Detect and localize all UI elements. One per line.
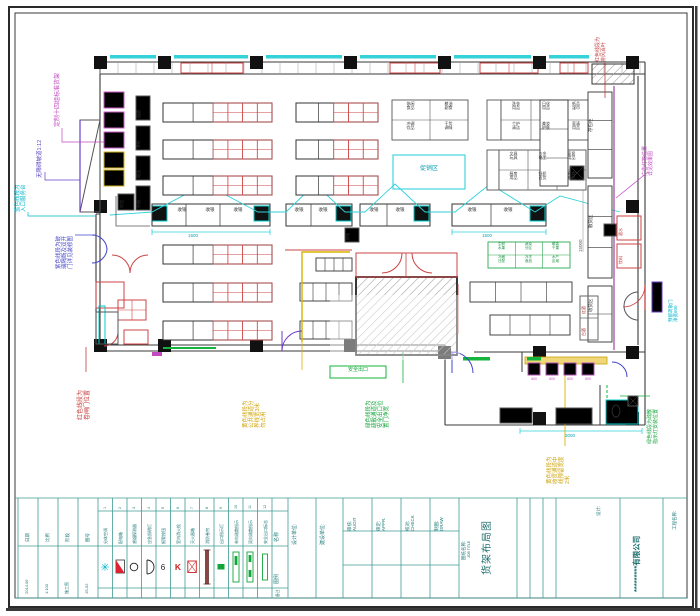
company-name: *********有限公司 <box>633 536 641 592</box>
job-title-label: 图纸名称: <box>461 541 466 560</box>
legend-symbol-dlamp-icon <box>143 548 155 586</box>
annotation-shelves-magenta: 定制十四组标准货架 <box>55 73 62 127</box>
panel-label: 配电 <box>347 233 351 240</box>
shelf-cell-label: 文具 玩具 <box>499 152 528 161</box>
annotation-glass-partition: 紫色线段为玻 璃隔断及双开 门详见装修图 <box>56 236 74 269</box>
info-label-3: 图号 <box>85 533 90 542</box>
plan-labels-layer: 定制十四组标准货架 无障碍坡道1:12 蓝色线段为 入口服务台 紫色线段为玻 璃… <box>0 0 700 616</box>
annotation-exhaust-louver: 红色线段为 排风百叶 <box>596 37 607 62</box>
fixture-dim: 600 <box>545 378 559 382</box>
legend-item-no: 2 <box>118 507 122 509</box>
legend-item-no: 8 <box>205 507 209 509</box>
legend-row-label-name: 名称 <box>275 532 281 542</box>
sign-field-0: 审核: AUDIT <box>347 518 357 532</box>
checkout-cell-label: 收银 <box>288 207 310 212</box>
project-name-label: 工程名称: <box>672 511 677 530</box>
fresh-cell-label: 散装 干果 <box>542 243 569 251</box>
watermark-overlay <box>330 295 460 360</box>
job-title: 货架布局图 <box>482 520 493 575</box>
svg-text:6: 6 <box>161 563 166 572</box>
fresh-cell-label: 生鲜 水果 <box>488 243 515 251</box>
legend-item-name: 室内消火栓 <box>177 524 181 544</box>
sign-field-3: 制图: DRAW <box>434 517 444 531</box>
legend-symbol-panel-icon <box>114 548 126 586</box>
legend-symbol-exit3-icon <box>259 548 271 586</box>
legend-symbol-exit1-icon <box>230 548 242 586</box>
info-value-2: 施工图 <box>65 582 69 594</box>
legend-item-no: 11 <box>248 505 252 509</box>
shelf-cell-label: 美妆 护肤 <box>531 122 561 131</box>
legend-symbol-exitsmall-icon <box>215 548 227 586</box>
legend-item-name: 灭火器箱 <box>191 528 195 544</box>
legend-item-no: 10 <box>234 505 238 509</box>
fresh-cell-label: 蔬菜 分区 <box>515 243 542 251</box>
legend-symbol-button-icon: 6 <box>157 548 169 586</box>
info-label-2: 阶段 <box>65 533 70 542</box>
shelf-cell-label: 家清 用品 <box>561 122 591 131</box>
legend-item-no: 3 <box>132 507 136 509</box>
sign-field-2: 校对: CHECK <box>405 515 415 531</box>
dim-room: 3000 <box>565 433 575 438</box>
legend-item-name: 双向疏散指示 <box>249 520 253 544</box>
drawing-sheet: 定制十四组标准货架 无障碍坡道1:12 蓝色线段为 入口服务台 紫色线段为玻 璃… <box>0 0 700 616</box>
legend-item-name: 感烟探测器 <box>133 524 137 544</box>
legend-item-name: 分体空调 <box>104 528 108 544</box>
legend-symbol-circle-icon <box>128 548 140 586</box>
legend-item-no: 4 <box>147 507 151 509</box>
checkout-cell-label: 收银 <box>198 207 222 212</box>
shelf-cell-label: 鞋帽 箱包 <box>557 172 586 181</box>
unit-label-1: 建设单位: <box>321 524 327 545</box>
checkout-cell-label: 收银 <box>226 207 250 212</box>
legend-item-no: 12 <box>263 505 267 509</box>
legend-item-name: 消防卷帘 <box>206 528 210 544</box>
promo-zone-label: 促销区 <box>394 166 464 173</box>
legend-symbol-hydrant-icon: K <box>172 548 184 586</box>
shelf-cell-label: 厨房 用品 <box>499 172 528 181</box>
shelf-cell-label: 冲调 饮品 <box>392 122 429 131</box>
checkout-cell-label: 收银 <box>388 207 412 212</box>
legend-item-name: 报警按钮 <box>162 528 166 544</box>
annotation-exit-lights: 绿色线段为疏散 指示灯安装位置 <box>648 409 659 444</box>
design-label: 设计: <box>596 506 601 516</box>
legend-row-label-note: 备注 <box>276 589 280 597</box>
shelf-cell-label: 家居 用品 <box>557 152 586 161</box>
legend-symbol-exit2-icon <box>244 548 256 586</box>
shelf-cell-label: 休闲 食品 <box>392 102 429 111</box>
wine-box-label: 红酒 <box>582 306 586 314</box>
annotation-evac-route: 绿色线段为 疏散通道及 安全出口位 置门净宽 <box>366 400 391 428</box>
bin-label: 茶叶 <box>137 140 141 148</box>
legend-symbol-shutter-icon <box>201 548 213 586</box>
legend-item-no: 9 <box>219 507 223 509</box>
fixture-dim: 600 <box>527 378 541 382</box>
annotation-roller-door: 红色线段为 卷闸门位置 <box>78 390 91 420</box>
legend-item-no: 7 <box>190 507 194 509</box>
checkout-cell-label: 收银 <box>170 207 194 212</box>
dim-checkout-2: 1500 <box>482 233 492 238</box>
info-value-1: 1:100 <box>45 584 49 594</box>
sign-field-1: 审定: APPR. <box>376 517 386 531</box>
dim-right-vertical: 15000 <box>578 239 583 252</box>
checkout-cell-label: 收银 <box>362 207 386 212</box>
side-box-label: 酒水 <box>619 228 623 236</box>
legend-item-no: 6 <box>176 507 180 509</box>
counter-label: 散货区 <box>588 215 593 229</box>
exit-sign-label: 安全出口 <box>331 368 385 374</box>
fixture-dim: 600 <box>581 378 595 382</box>
info-label-1: 比例 <box>45 533 50 542</box>
checkout-cell-label: 收银 <box>456 207 488 212</box>
info-label-0: 日期 <box>25 533 30 542</box>
legend-item-name: 单向疏散指示 <box>235 520 239 544</box>
fresh-cell-label: 冷藏 日配 <box>488 256 515 264</box>
bin-label: 烟酒 <box>137 110 141 118</box>
legend-item-name: 出口指示灯 <box>220 524 224 544</box>
unit-label-0: 设计单位: <box>293 524 299 545</box>
counter-label: 存包柜 <box>588 119 593 133</box>
checkout-cell-label: 收银 <box>312 207 334 212</box>
shelf-cell-label: 粮油 副食 <box>430 102 467 111</box>
annotation-ramp: 无障碍坡道1:12 <box>37 140 43 178</box>
locker-label: 存包 <box>120 200 124 208</box>
shelf-cell-label: 日化 用品 <box>531 102 561 111</box>
shelf-cell-label: 洗衣 用品 <box>501 102 531 111</box>
legend-item-name: 配电箱 <box>119 532 123 544</box>
bin-label: 杂粮 <box>137 200 141 208</box>
legend-item-no: 1 <box>103 507 107 509</box>
legend-item-name: 应急照明灯 <box>148 524 152 544</box>
shelf-cell-label: 个护 清洁 <box>501 122 531 131</box>
wine-box-label: 白酒 <box>582 328 586 336</box>
dim-checkout-1: 1500 <box>188 233 198 238</box>
shelf-cell-label: 针织 百货 <box>528 172 557 181</box>
svg-text:✳: ✳ <box>101 562 110 574</box>
shelf-cell-label: 干货 调味 <box>430 122 467 131</box>
legend-item-name: 安全出口标志 <box>264 520 268 544</box>
info-value-3: JS-02 <box>85 584 89 594</box>
shelf-cell-label: 纸品 湿巾 <box>561 102 591 111</box>
annotation-public-aisle: 黄色线段为 公共通道分 界线宽3米 勿占用 <box>243 400 268 428</box>
svg-text:K: K <box>175 562 182 572</box>
annotation-service-desk: 蓝色线段为 入口服务台 <box>15 184 27 212</box>
checkout-cell-label: 收银 <box>492 207 524 212</box>
side-box-label: 饮料 <box>619 256 623 264</box>
fresh-cell-label: 冷冻 食品 <box>515 256 542 264</box>
info-value-0: 2014.06 <box>25 580 29 594</box>
legend-symbol-ac-icon: ✳ <box>99 548 111 586</box>
legend-row-label-symbol: 图例 <box>275 574 281 584</box>
fixture-dim: 600 <box>563 378 577 382</box>
fresh-cell-label: 水产 区域 <box>542 256 569 264</box>
annotation-lightbox: 广告灯箱位置 详见效果图 <box>643 146 654 176</box>
annotation-evac-door: 预留疏散门 净宽600 <box>668 300 678 323</box>
job-title-en: JOB TITLE <box>468 541 472 558</box>
legend-symbol-extbox-icon <box>186 548 198 586</box>
counter-label: 收货区 <box>588 299 593 313</box>
annotation-receiving-aisle: 黄色线段为 收货通道中 线预留宽度 2米 <box>547 456 572 484</box>
shelf-cell-label: 五金 电工 <box>528 152 557 161</box>
bin-label: 粮油 <box>137 170 141 178</box>
legend-item-no: 5 <box>161 507 165 509</box>
